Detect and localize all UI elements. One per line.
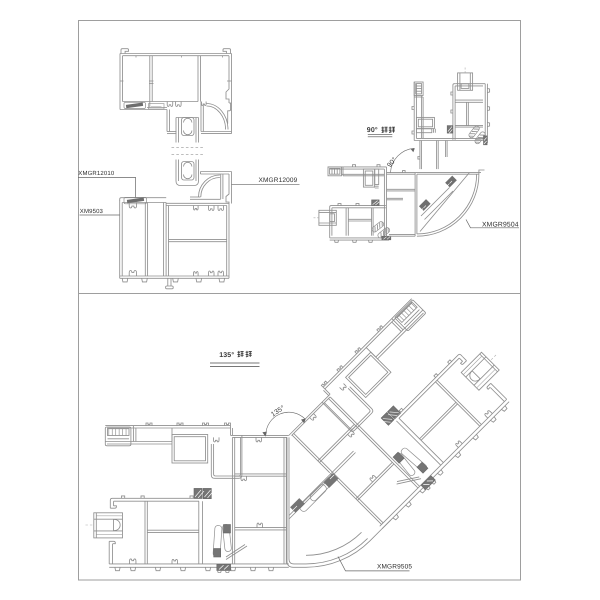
svg-text:135°: 135° bbox=[219, 352, 234, 359]
svg-text:XM9503: XM9503 bbox=[80, 208, 104, 215]
svg-text:90°: 90° bbox=[367, 127, 378, 134]
svg-text:XMGR12010: XMGR12010 bbox=[78, 170, 115, 177]
svg-text:XMGR9505: XMGR9505 bbox=[377, 564, 412, 571]
svg-text:XMGR9504: XMGR9504 bbox=[482, 221, 519, 228]
svg-text:XMGR12009: XMGR12009 bbox=[259, 177, 298, 184]
